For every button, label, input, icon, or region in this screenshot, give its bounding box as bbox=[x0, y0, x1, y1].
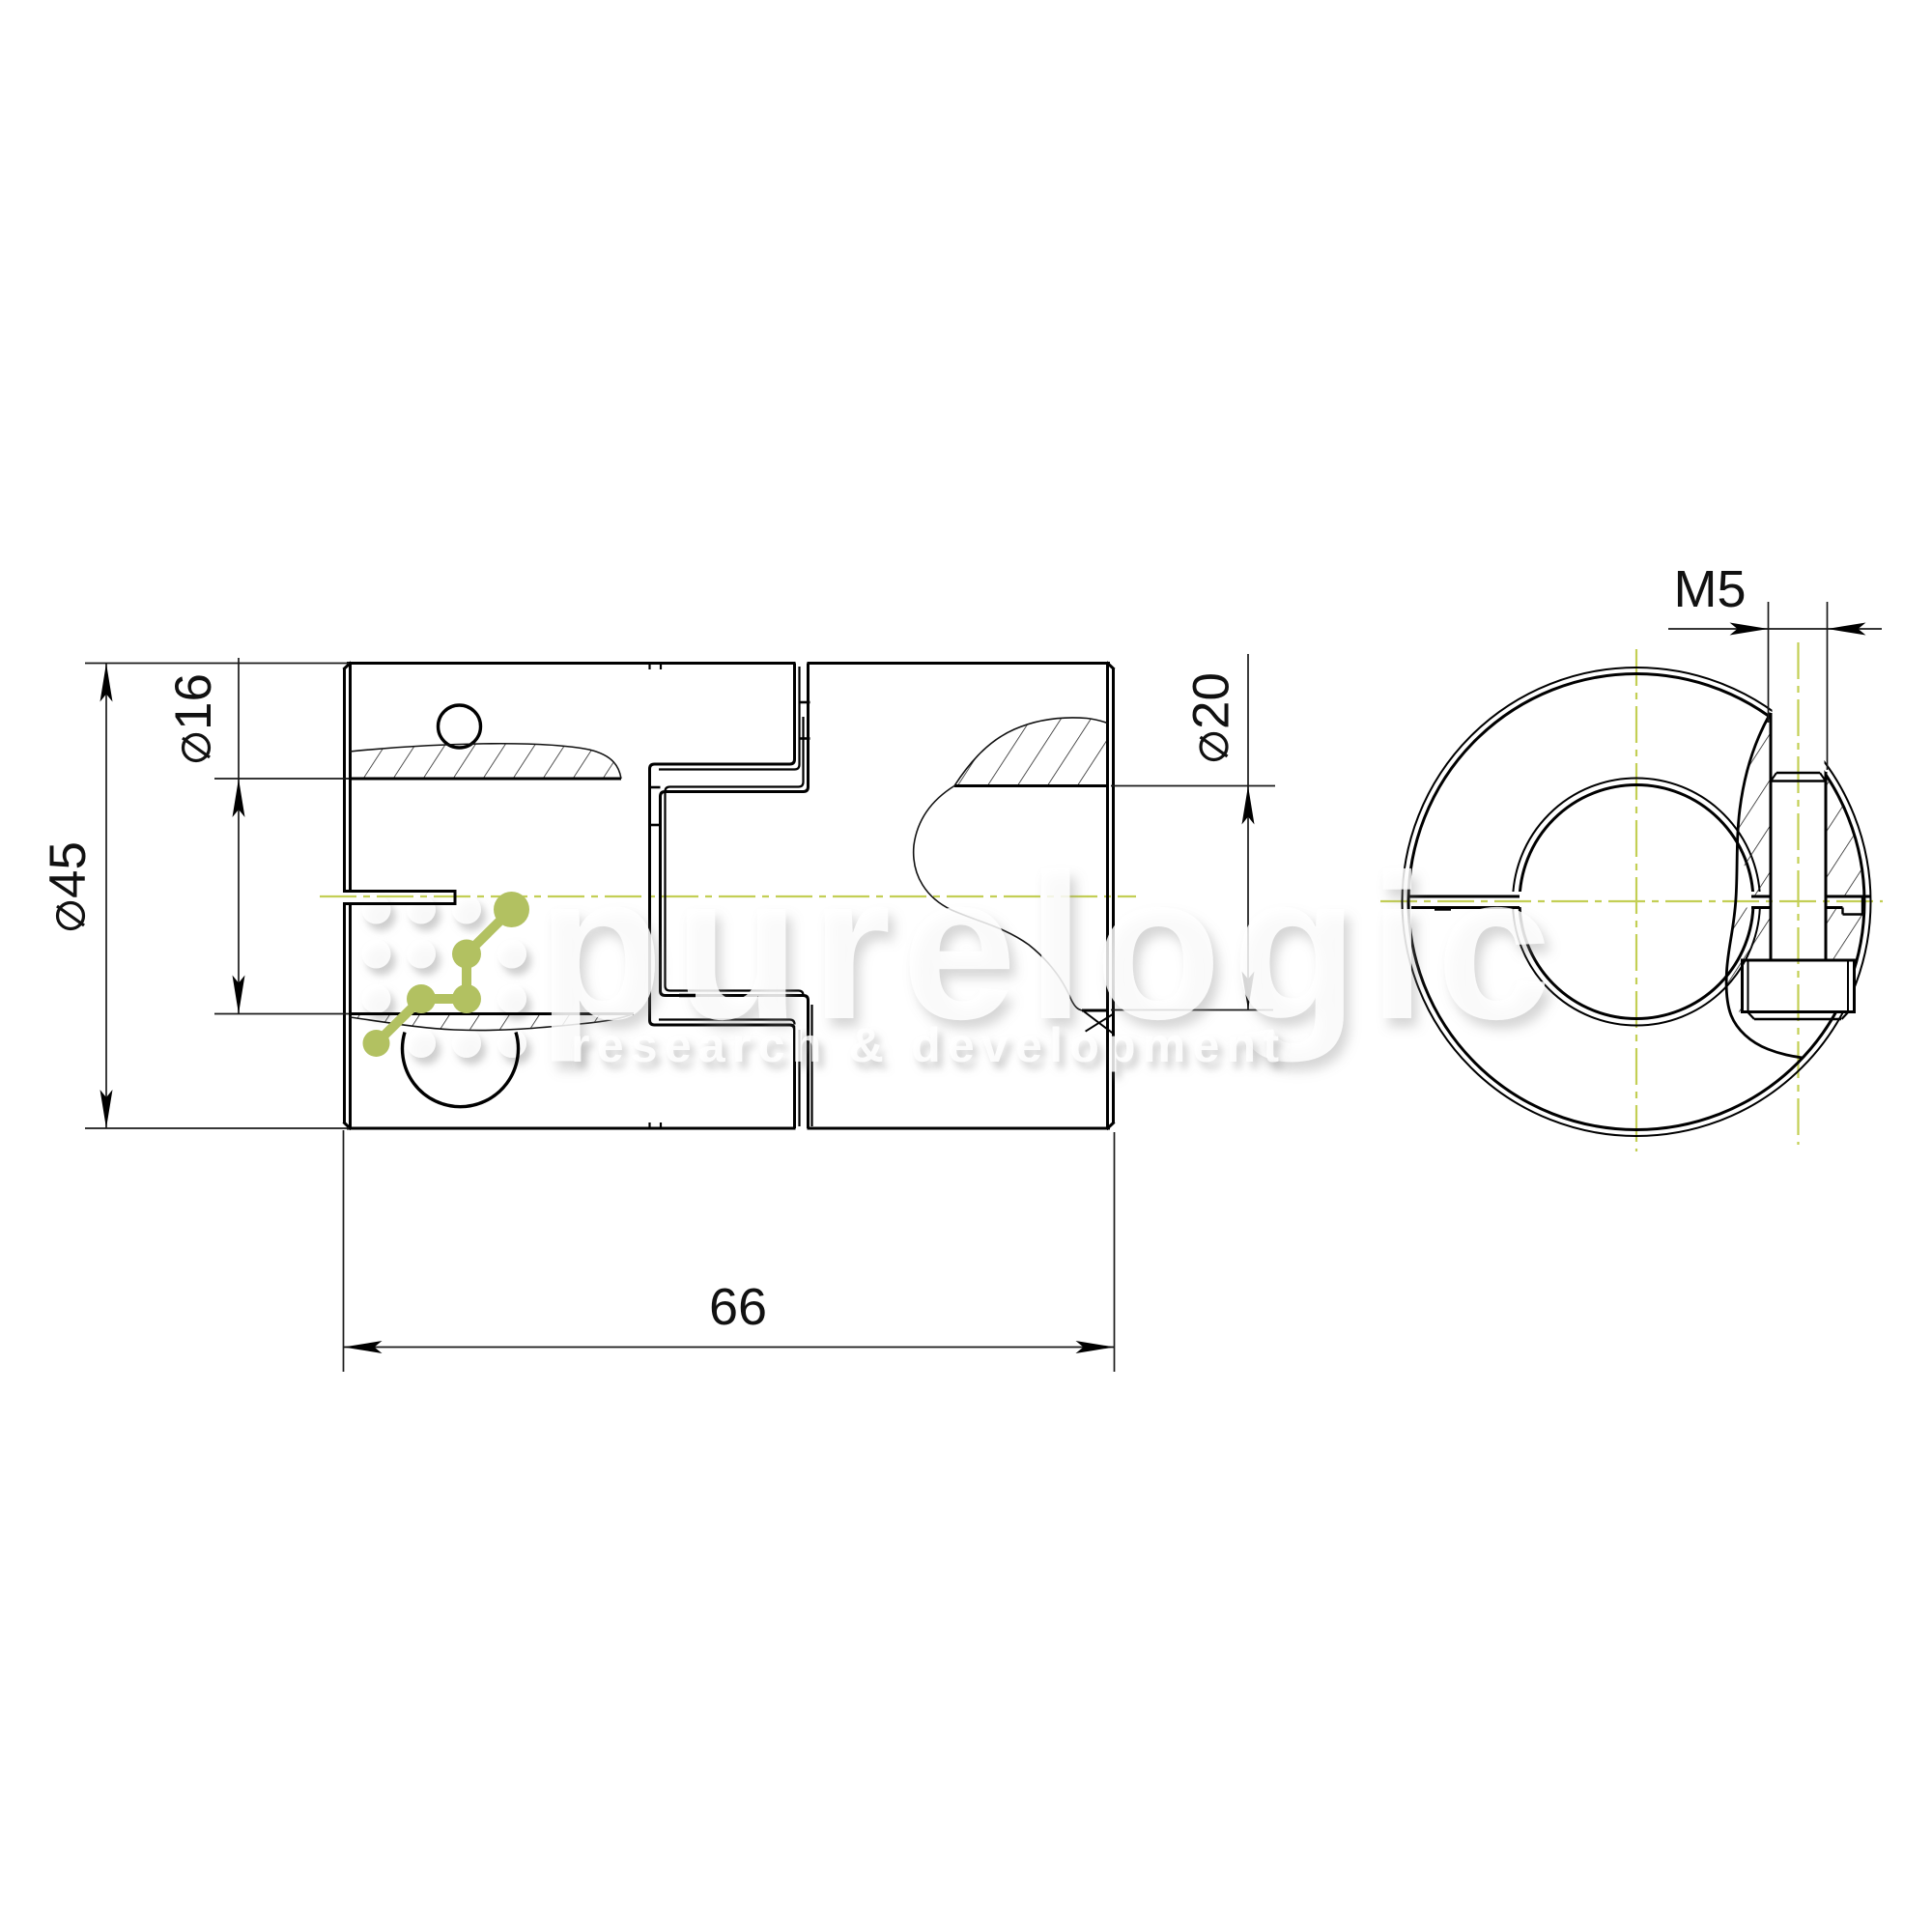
svg-text:20: 20 bbox=[1183, 672, 1240, 729]
svg-text:research & development: research & development bbox=[571, 1018, 1279, 1072]
svg-text:M5: M5 bbox=[1673, 560, 1746, 618]
svg-text:45: 45 bbox=[40, 841, 97, 898]
svg-text:16: 16 bbox=[165, 673, 222, 730]
svg-text:66: 66 bbox=[709, 1278, 767, 1336]
